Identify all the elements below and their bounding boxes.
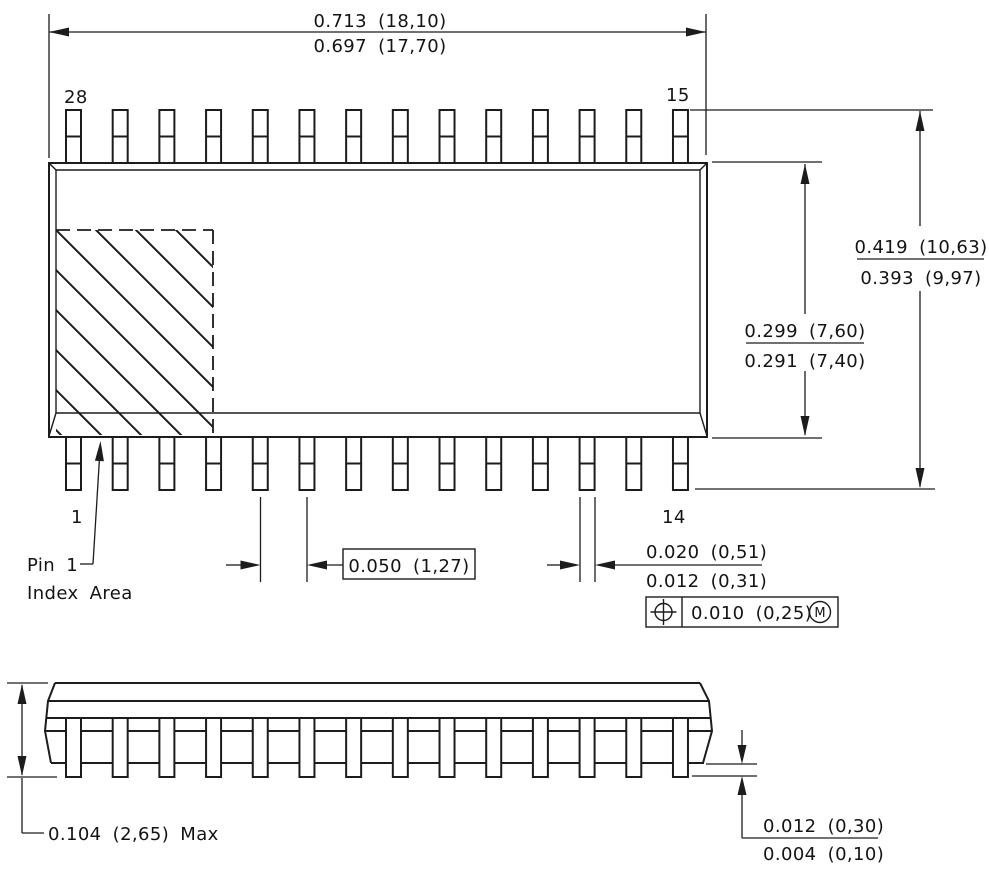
lead xyxy=(253,718,268,777)
dim-overall-span: 0.419 (10,63) 0.393 (9,97) xyxy=(690,110,988,489)
top-view: 0.713 (18,10) 0.697 (17,70) 28 15 1 14 0… xyxy=(0,11,988,627)
side-pin-row xyxy=(66,718,688,777)
pin-1-label: 1 xyxy=(71,507,83,528)
lead xyxy=(580,718,595,777)
feature-control-frame: 0.010 (0,25) M xyxy=(646,597,838,627)
body-depth-min-label: 0.291 (7,40) xyxy=(744,351,865,372)
mmc-m-label: M xyxy=(814,606,825,621)
dim-lead-pitch: 0.050 (1,27) xyxy=(226,497,475,582)
max-height-label: 0.104 (2,65) Max xyxy=(48,824,219,845)
lead xyxy=(346,718,361,777)
lead xyxy=(66,718,81,777)
lead-width-max-label: 0.020 (0,51) xyxy=(646,542,767,563)
true-position-tolerance-label: 0.010 (0,25) xyxy=(691,603,812,624)
package-outline-drawing: 0.713 (18,10) 0.697 (17,70) 28 15 1 14 0… xyxy=(0,0,989,874)
lead xyxy=(626,718,641,777)
span-min-label: 0.393 (9,97) xyxy=(860,268,981,289)
span-max-label: 0.419 (10,63) xyxy=(854,237,987,258)
lead xyxy=(673,718,688,777)
lead xyxy=(113,718,128,777)
pin1-callout-line2: Index Area xyxy=(27,583,133,604)
lead xyxy=(299,718,314,777)
lead xyxy=(440,718,455,777)
pin-28-label: 28 xyxy=(64,87,88,108)
top-pin-row xyxy=(66,110,688,163)
dim-overall-width: 0.713 (18,10) 0.697 (17,70) xyxy=(49,11,706,158)
lead-width-min-label: 0.012 (0,31) xyxy=(646,571,767,592)
lead xyxy=(486,718,501,777)
mmc-modifier-icon: M xyxy=(810,602,831,623)
lead xyxy=(533,718,548,777)
dim-standoff: 0.012 (0,30) 0.004 (0,10) xyxy=(692,730,884,865)
package-body xyxy=(49,163,707,437)
bottom-pin-row xyxy=(66,437,688,490)
pitch-label: 0.050 (1,27) xyxy=(348,556,469,577)
lead xyxy=(206,718,221,777)
width-min-label: 0.697 (17,70) xyxy=(313,36,446,57)
true-position-icon xyxy=(651,599,677,625)
dim-body-depth: 0.299 (7,60) 0.291 (7,40) xyxy=(712,162,866,438)
body-depth-max-label: 0.299 (7,60) xyxy=(744,321,865,342)
standoff-max-label: 0.012 (0,30) xyxy=(763,816,884,837)
dim-lead-width: 0.020 (0,51) 0.012 (0,31) xyxy=(547,497,767,592)
lead xyxy=(159,718,174,777)
pin-14-label: 14 xyxy=(662,507,686,528)
side-body xyxy=(45,683,712,763)
side-view: 0.104 (2,65) Max 0.012 (0,30) 0.004 (0,1… xyxy=(7,683,884,865)
pin-15-label: 15 xyxy=(666,85,690,106)
lead xyxy=(393,718,408,777)
width-max-label: 0.713 (18,10) xyxy=(313,11,446,32)
pin1-callout-line1: Pin 1 xyxy=(27,555,78,576)
drawing-canvas: 0.713 (18,10) 0.697 (17,70) 28 15 1 14 0… xyxy=(0,0,989,874)
standoff-min-label: 0.004 (0,10) xyxy=(763,844,884,865)
